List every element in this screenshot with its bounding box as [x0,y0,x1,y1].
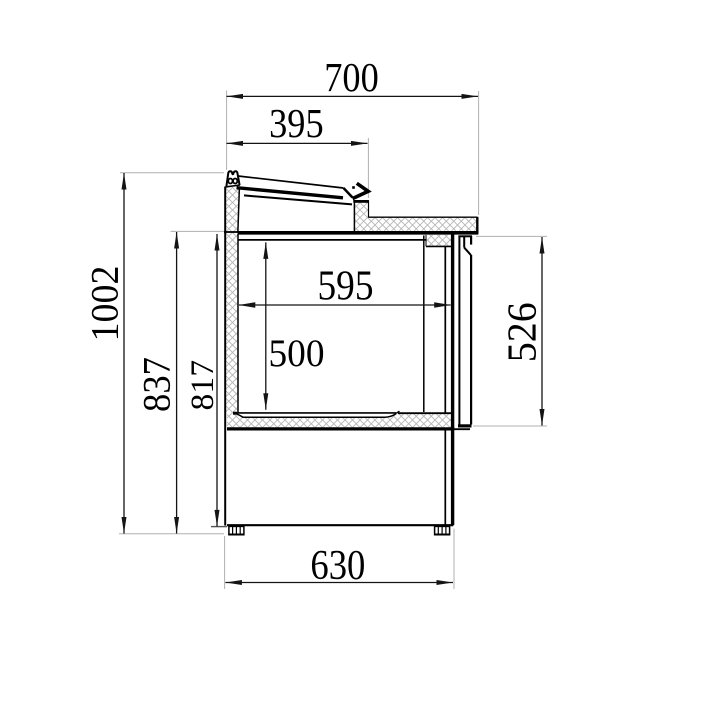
svg-text:526: 526 [499,302,545,362]
svg-text:837: 837 [135,357,179,412]
svg-text:595: 595 [318,263,374,310]
svg-text:630: 630 [310,542,365,589]
svg-text:817: 817 [185,360,221,411]
svg-text:395: 395 [269,101,324,146]
svg-text:1002: 1002 [83,266,127,342]
svg-text:700: 700 [324,54,379,100]
svg-text:500: 500 [269,333,325,375]
